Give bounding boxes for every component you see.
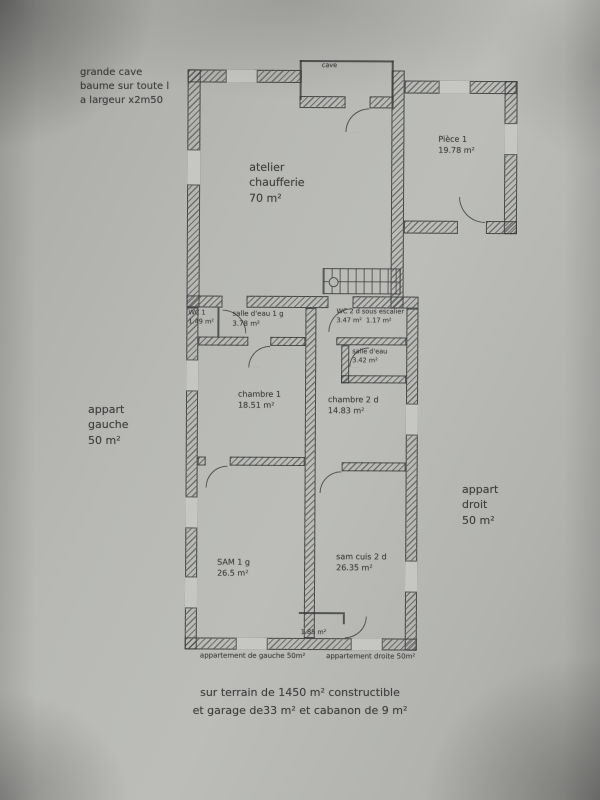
window <box>185 576 197 608</box>
door-arc-sam1 <box>206 466 228 488</box>
room-name: chaufferie <box>249 175 349 191</box>
wall-chambre1-bottom-a <box>198 456 206 465</box>
room-label-wc1: WC 1 1.49 m² <box>188 308 218 326</box>
wall-porch-right <box>370 96 394 108</box>
room-name: atelier <box>249 160 349 176</box>
door-arc-chambre2 <box>320 471 342 493</box>
wall-row1-left-a <box>198 336 248 345</box>
door-arc-chambre1 <box>248 346 270 368</box>
wall-party <box>304 308 317 638</box>
caption-appart-gauche: appartement de gauche 50m² <box>197 651 309 661</box>
window <box>439 81 471 94</box>
wall-chambre1-bottom-b <box>230 457 305 466</box>
footer-line: et garage de33 m² et cabanon de 9 m² <box>140 702 460 720</box>
porch-side-line <box>300 60 302 100</box>
room-area-a: 3.47 m² <box>336 316 362 324</box>
room-name: WC 1 <box>188 308 218 317</box>
room-label-wc-bas: 1.85 m² <box>301 628 341 637</box>
room-area: 1.49 m² <box>188 318 218 327</box>
wall-row1-left-b <box>270 337 305 346</box>
room-area: 14.83 m² <box>328 405 408 417</box>
room-area: 26.35 m² <box>336 562 416 574</box>
room-label-sam-cuis2: sam cuis 2 d 26.35 m² <box>336 551 416 574</box>
window <box>236 638 268 650</box>
room-label-sam1: SAM 1 g 26.5 m² <box>217 557 287 580</box>
floor-plan-drawing: cave atelier chaufferie 70 m² Pièce 1 19… <box>0 0 600 800</box>
staircase <box>323 268 401 294</box>
porch-edge-line <box>300 60 394 62</box>
caption-appart-droit: appartement droite 50m² <box>319 652 423 662</box>
room-area-b: 1.17 m² <box>366 316 392 324</box>
room-area: 70 m² <box>249 191 349 207</box>
wall-wc-bas-top <box>299 612 345 614</box>
window <box>226 70 258 83</box>
wall-chambre2-bottom <box>342 462 406 471</box>
wall-piece1-bottom-right <box>486 221 517 234</box>
room-name: chambre 2 d <box>328 394 408 406</box>
door-arc-piece1 <box>459 197 485 223</box>
room-name: salle d'eau <box>352 347 407 356</box>
floor-plan-photo: grande cave baume sur toute l a largeur … <box>0 0 600 800</box>
room-label-salle-eau1: salle d'eau 1 g 3.78 m² <box>232 310 307 330</box>
footer-line: sur terrain de 1450 m² constructible <box>140 684 460 702</box>
room-label-atelier: atelier chaufferie 70 m² <box>249 160 349 207</box>
room-label-wc2: WC 2 d sous escalier 3.47 m² 1.17 m² <box>336 307 426 326</box>
window <box>351 638 383 650</box>
window <box>187 149 200 185</box>
wall-mid-band-2 <box>246 296 328 308</box>
room-label-salle-eau2: salle d'eau 3.42 m² <box>352 347 407 365</box>
room-label-piece1: Pièce 1 19.78 m² <box>438 134 508 157</box>
room-name: SAM 1 g <box>217 557 287 569</box>
room-area: 3.78 m² <box>232 319 307 329</box>
door-arc-entry <box>345 108 369 132</box>
wall-piece1-bottom-left <box>404 221 458 234</box>
room-area: 26.5 m² <box>217 568 287 580</box>
room-area: 1.85 m² <box>301 628 341 637</box>
cave-label: cave <box>322 61 337 70</box>
room-label-chambre2: chambre 2 d 14.83 m² <box>328 394 408 417</box>
door-arc-wc-bas <box>345 616 367 638</box>
wall-porch-left <box>300 96 346 108</box>
room-area: 3.42 m² <box>352 356 407 365</box>
window <box>185 496 197 528</box>
footer-note: sur terrain de 1450 m² constructible et … <box>140 684 460 719</box>
window <box>186 359 198 391</box>
room-name: salle d'eau 1 g <box>232 310 307 320</box>
room-name: sam cuis 2 d <box>336 551 416 563</box>
room-area: 19.78 m² <box>438 145 508 157</box>
wall-mid-band-1 <box>186 295 222 307</box>
room-area: 3.47 m² 1.17 m² <box>336 316 426 326</box>
room-label-chambre1: chambre 1 18.51 m² <box>238 389 308 412</box>
room-area: 18.51 m² <box>238 400 308 412</box>
wall-atelier-left <box>186 69 200 307</box>
wall-salle-eau2-bottom <box>341 375 406 383</box>
room-name: Pièce 1 <box>438 134 508 146</box>
wall-piece1-right <box>504 81 518 234</box>
room-name: chambre 1 <box>238 389 308 401</box>
